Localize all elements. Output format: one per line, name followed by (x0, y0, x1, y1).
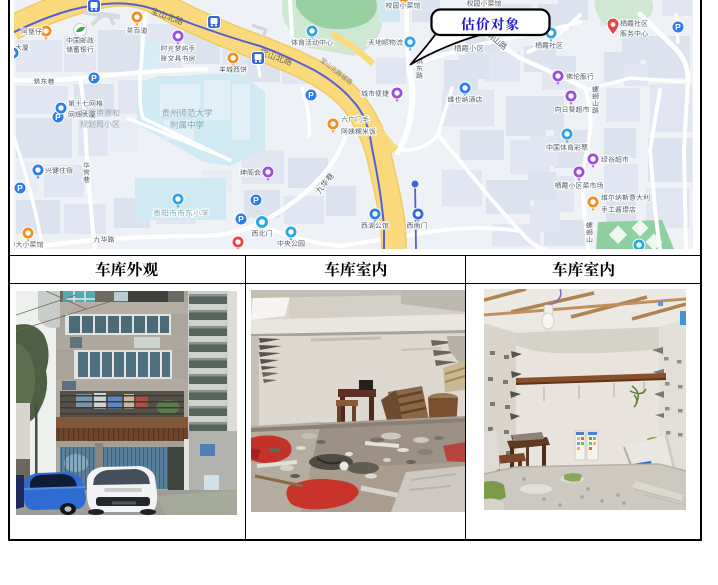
svg-text:P: P (675, 22, 681, 32)
svg-text:P: P (91, 73, 97, 83)
svg-text:P: P (17, 183, 23, 193)
svg-text:P: P (253, 195, 259, 205)
svg-text:P: P (238, 214, 244, 224)
svg-text:P: P (308, 90, 314, 100)
